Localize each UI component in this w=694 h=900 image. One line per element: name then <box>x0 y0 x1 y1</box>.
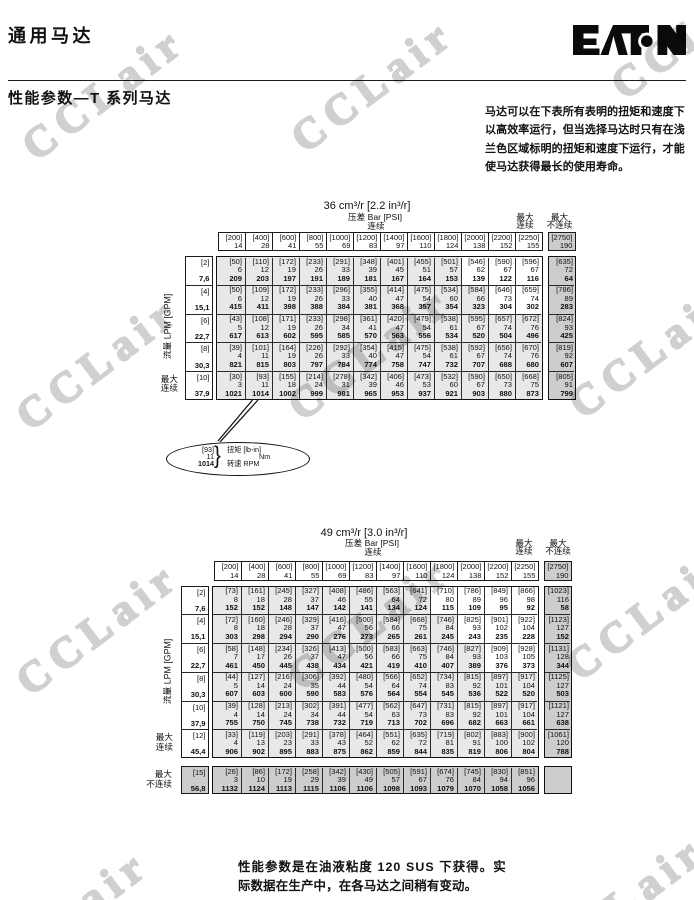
svg-text:CCLair: CCLair <box>534 826 694 900</box>
svg-text:CCLair: CCLair <box>280 277 461 430</box>
svg-text:CCLair: CCLair <box>0 840 159 900</box>
svg-text:CCLair: CCLair <box>8 287 189 440</box>
svg-text:CCLair: CCLair <box>558 537 694 690</box>
svg-text:CCLair: CCLair <box>603 0 694 109</box>
svg-text:CCLair: CCLair <box>14 17 195 170</box>
svg-text:CCLair: CCLair <box>280 547 461 700</box>
svg-text:CCLair: CCLair <box>561 275 694 428</box>
svg-text:CCLair: CCLair <box>283 9 464 162</box>
svg-text:CCLair: CCLair <box>8 552 189 705</box>
